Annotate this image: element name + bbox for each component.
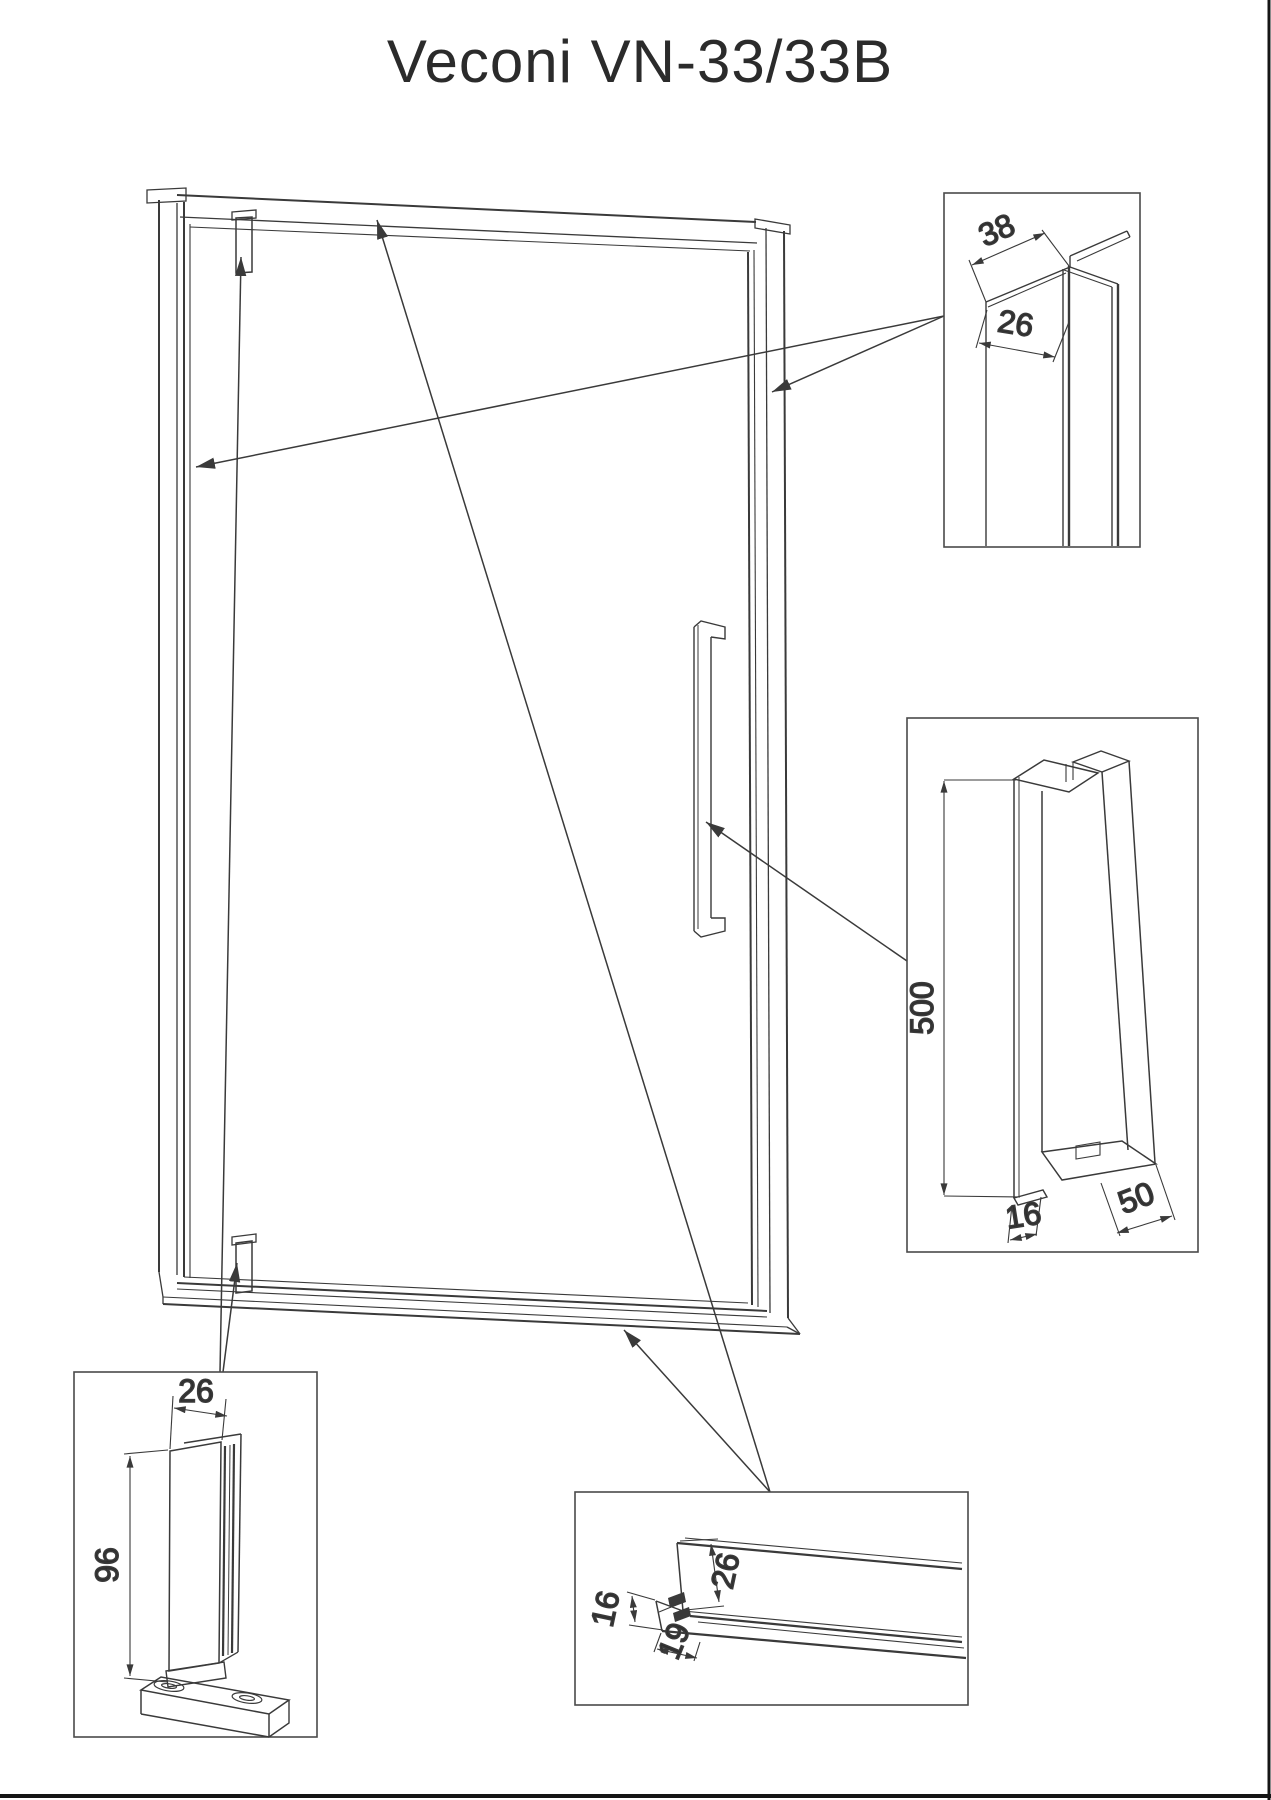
leader-wall-profile-right [772,316,944,392]
dim-hinge-width-label: 26 [178,1373,214,1409]
detail-wall-profile: 38 26 [944,193,1140,547]
dim-wall-depth-label: 26 [995,303,1036,344]
bottom-rail [159,1272,800,1334]
leader-wall-profile-left [196,316,944,467]
right-wall-profile [766,228,788,1318]
leader-bottom-rail-profile [624,1330,770,1492]
door-handle [694,621,725,937]
dim-rail-base-height-label: 16 [584,1588,627,1630]
top-pivot-hinge [232,210,256,273]
detail-pivot-hinge: 26 96 [74,1372,317,1737]
top-header-bar [177,195,790,251]
dim-hinge-height-label: 96 [89,1547,125,1583]
detail-bottom-profile-box [575,1492,968,1705]
left-wall-profile [147,188,186,1275]
detail-handle: 500 16 50 [904,718,1198,1252]
detail-handle-box [907,718,1198,1252]
dim-handle-bar-label: 16 [1003,1195,1044,1236]
page-title: Veconi VN-33/33B [387,28,893,95]
drawing-sheet: Veconi VN-33/33B [0,0,1271,1800]
dim-handle-length-label: 500 [904,981,940,1034]
leader-handle [706,822,907,961]
bottom-pivot-hinge [232,1234,256,1293]
glass-right-edge [748,252,752,1305]
dim-rail-height-label: 26 [704,1550,747,1592]
detail-bottom-profile: 26 16 19 [575,1492,968,1705]
main-door-assembly-drawing [147,188,800,1334]
leader-top-hinge [220,257,241,1372]
